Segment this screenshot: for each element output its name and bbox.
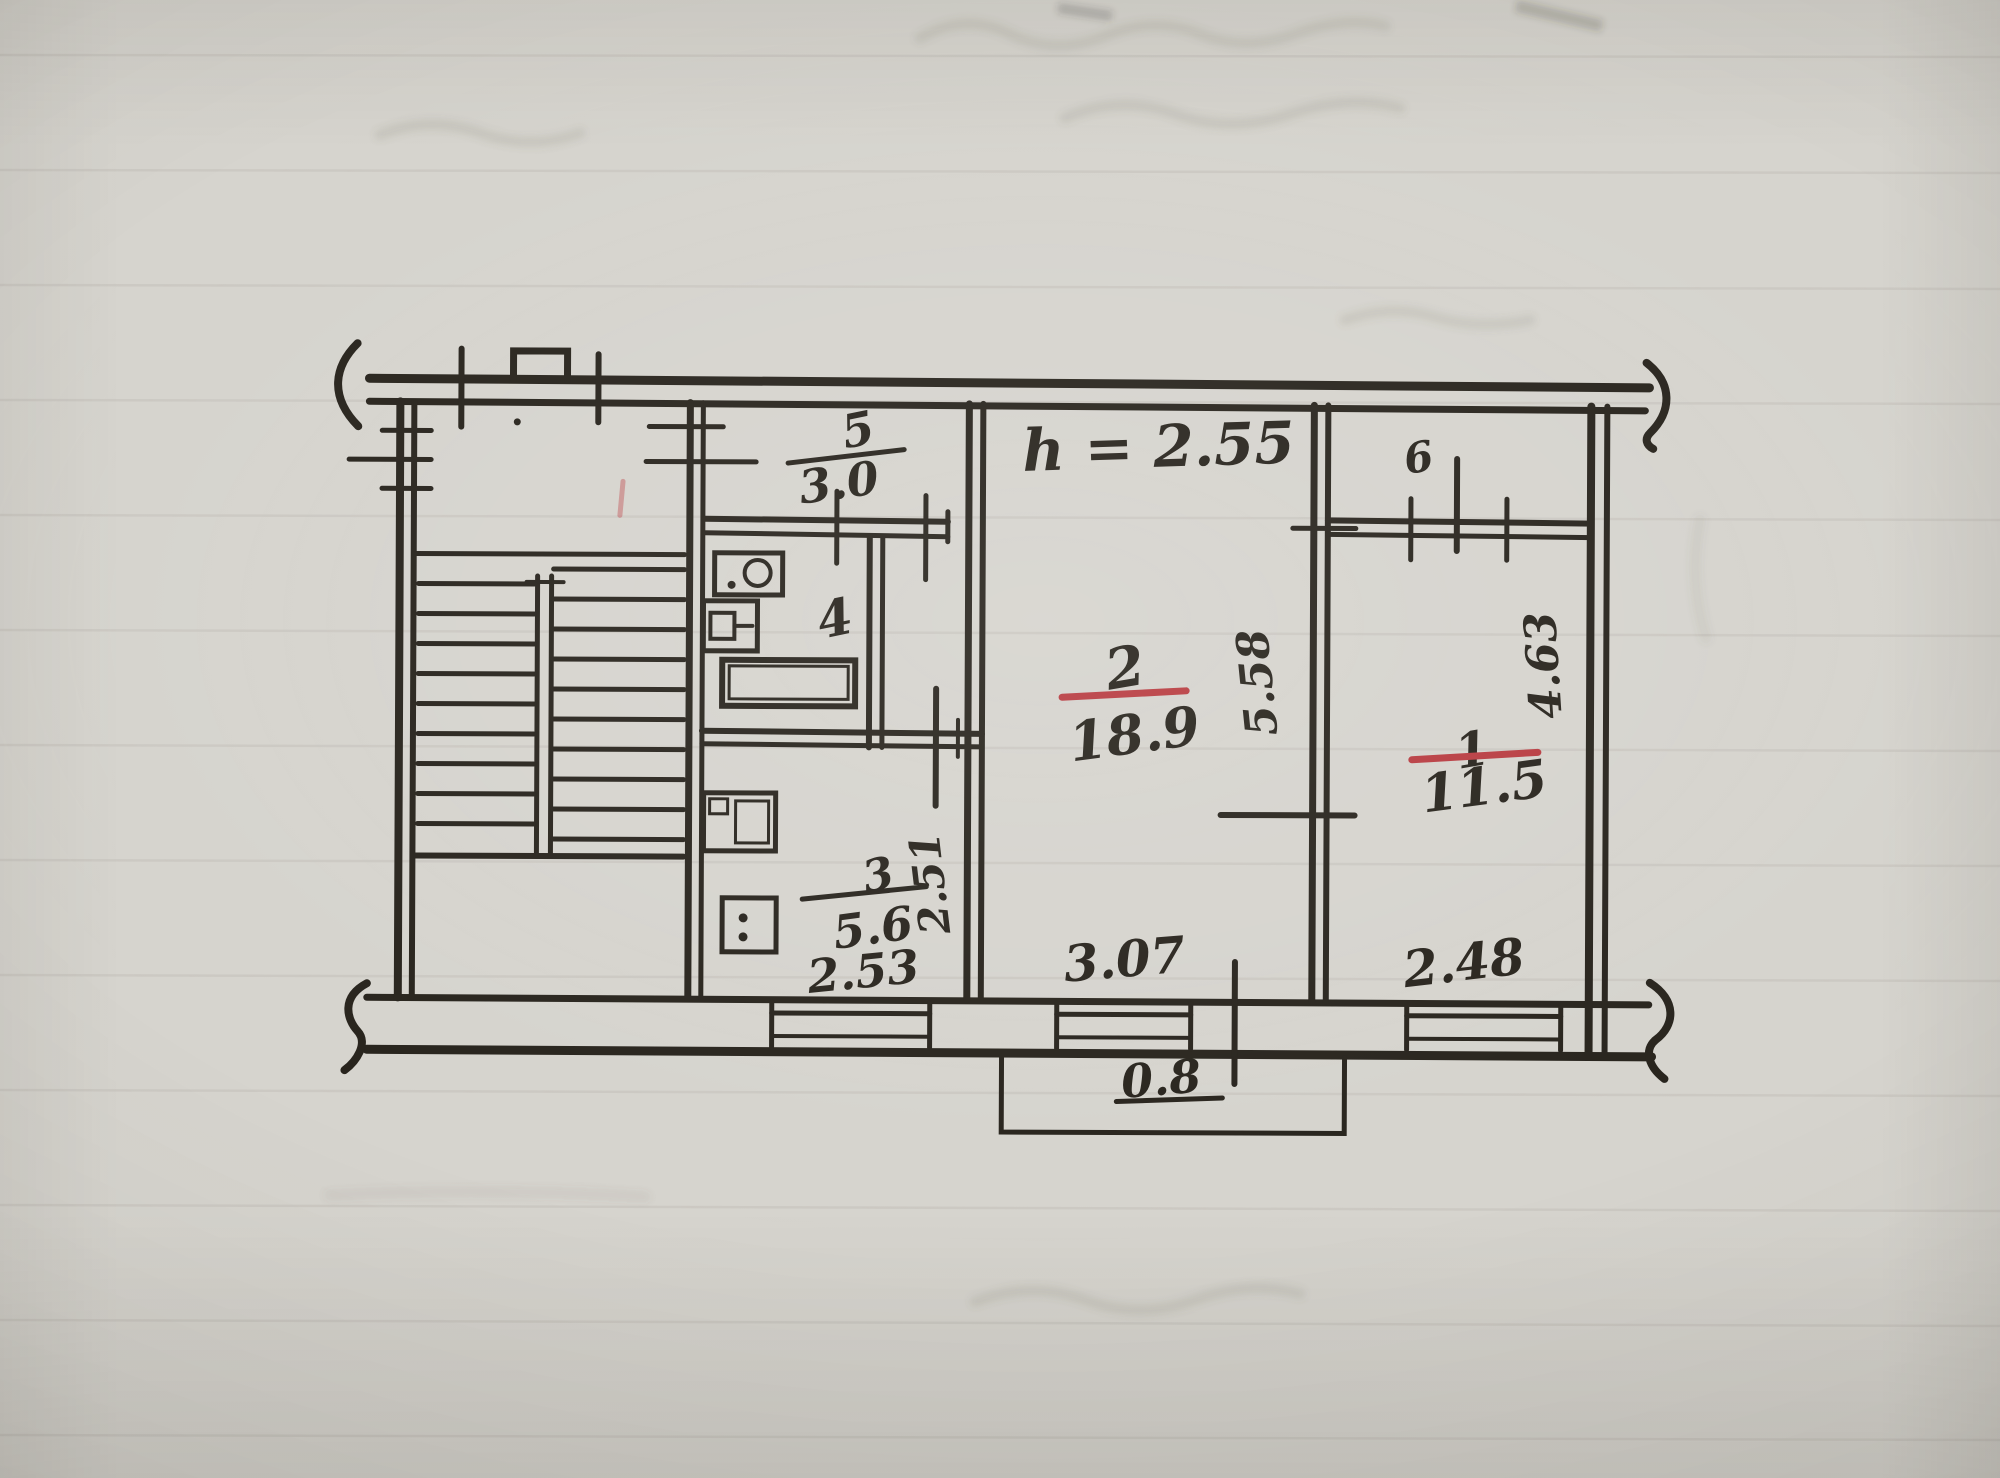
scanned-floor-plan-page: 5 3.0 h = 2.55 6 4 2 18.9 5.58 1 11.5 4.… xyxy=(0,0,2000,1478)
stair-center-stringer xyxy=(536,576,537,856)
stair-tread xyxy=(553,809,684,810)
stair-tread xyxy=(418,703,534,704)
kitchen-top-wall xyxy=(702,731,982,734)
living-bedroom-dividing-wall xyxy=(1312,405,1315,1001)
window-sill-line xyxy=(1407,1039,1561,1040)
window-sill-line xyxy=(1057,1014,1191,1015)
kitchen-top-wall-inner-line xyxy=(702,744,982,747)
ink-dot xyxy=(514,418,521,425)
bedroom-depth-dim: 4.63 xyxy=(1515,610,1573,720)
stair-tread xyxy=(418,763,534,764)
stair-tread xyxy=(552,839,683,840)
living-room-left-wall-inner-line xyxy=(981,404,984,1000)
red-pen-slip-mark xyxy=(620,481,623,515)
ceiling-height-note: h = 2.55 xyxy=(1021,409,1295,485)
stair-tread xyxy=(554,569,685,570)
stair-tread xyxy=(553,719,684,720)
living-bedroom-dividing-wall-inner-line xyxy=(1326,405,1329,1001)
stair-tread xyxy=(553,629,684,630)
stair-tread xyxy=(418,793,534,794)
stair-tread xyxy=(553,749,684,750)
stair-landing-edge xyxy=(417,553,685,554)
kitchen-width-dim: 2.53 xyxy=(804,939,922,1004)
window-sill-line xyxy=(772,1036,930,1037)
right-outer-wall-inner-line xyxy=(1605,407,1608,1055)
room-5-area: 3.0 xyxy=(796,450,883,514)
stair-tread xyxy=(553,659,684,660)
living-room-width-dim: 3.07 xyxy=(1061,925,1187,994)
bleed-through-artifact xyxy=(330,1191,645,1197)
stair-tread xyxy=(418,823,534,824)
hall-bottom-wall xyxy=(705,519,948,522)
stove-burner-dot xyxy=(739,932,748,941)
kitchen-door-tick xyxy=(936,689,937,806)
stairwell-partition-wall-inner-line xyxy=(701,403,704,999)
stair-tread xyxy=(553,689,684,690)
right-outer-wall xyxy=(1589,407,1592,1055)
bathroom-right-wall xyxy=(869,536,870,747)
stair-center-stringer xyxy=(550,576,551,856)
window-sill-line xyxy=(1057,1037,1191,1038)
stair-tread xyxy=(418,613,534,614)
stairwell-partition-wall xyxy=(688,403,691,999)
stair-tread xyxy=(553,779,684,780)
stair-tread xyxy=(418,673,534,674)
window-sill-line xyxy=(1407,1016,1561,1017)
stove-burner-dot xyxy=(739,913,748,922)
bathroom-right-wall-inner-line xyxy=(882,536,883,747)
stair-tread xyxy=(419,583,535,584)
stair-tread xyxy=(418,733,534,734)
stair-tread xyxy=(554,599,685,600)
living-room-depth-dim: 5.58 xyxy=(1227,627,1288,739)
stair-tread xyxy=(418,643,534,644)
wash-basin-drain xyxy=(728,581,736,589)
bottom-wall-tick xyxy=(1234,962,1235,1084)
window-sill-line xyxy=(772,1013,930,1014)
paper-background xyxy=(0,0,2000,1478)
bedroom-door-tick xyxy=(1221,815,1355,816)
living-room-left-wall xyxy=(967,404,970,1000)
floor-plan-canvas: 5 3.0 h = 2.55 6 4 2 18.9 5.58 1 11.5 4.… xyxy=(0,0,2000,1478)
